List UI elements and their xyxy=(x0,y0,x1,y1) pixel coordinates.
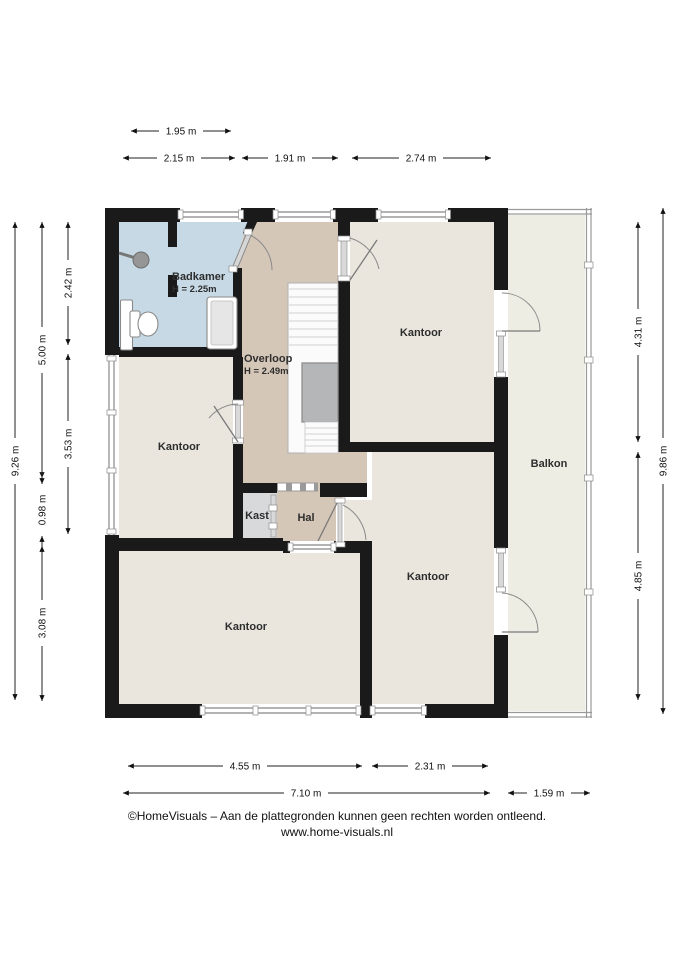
window-bottom-1 xyxy=(200,704,361,718)
svg-text:3.08 m: 3.08 m xyxy=(38,608,49,639)
dim-left-500: 5.00 m xyxy=(35,222,49,478)
dim-left-242: 2.42 m xyxy=(61,222,75,345)
svg-text:9.26 m: 9.26 m xyxy=(11,446,22,477)
dim-right-485: 4.85 m xyxy=(631,452,645,700)
dim-bottom-455: 4.55 m xyxy=(128,759,362,773)
overloop-label: Overloop xyxy=(244,353,293,365)
dim-right-431: 4.31 m xyxy=(631,222,645,442)
svg-text:7.10 m: 7.10 m xyxy=(291,789,322,800)
footer-disclaimer: ©HomeVisuals – Aan de plattegronden kunn… xyxy=(128,809,546,823)
stair-landing xyxy=(302,363,338,422)
window-top-2 xyxy=(273,208,336,222)
badkamer-label: Badkamer xyxy=(172,271,226,283)
svg-text:1.91 m: 1.91 m xyxy=(275,154,306,165)
kantoor-bottom-right-label: Kantoor xyxy=(407,571,450,583)
hal-label: Hal xyxy=(297,512,314,524)
svg-text:3.53 m: 3.53 m xyxy=(64,429,75,460)
svg-text:2.31 m: 2.31 m xyxy=(415,762,446,773)
kast-label: Kast xyxy=(245,510,269,522)
svg-text:2.15 m: 2.15 m xyxy=(164,154,195,165)
svg-text:4.55 m: 4.55 m xyxy=(230,762,261,773)
overloop-height-label: H = 2.49m xyxy=(244,366,289,377)
dim-left-926: 9.26 m xyxy=(8,222,22,700)
balkon-label: Balkon xyxy=(531,458,568,470)
dim-top-215: 2.15 m xyxy=(123,151,235,165)
window-top-3 xyxy=(376,208,451,222)
svg-text:0.98 m: 0.98 m xyxy=(38,495,49,526)
svg-text:5.00 m: 5.00 m xyxy=(38,335,49,366)
svg-text:2.74 m: 2.74 m xyxy=(406,154,437,165)
dim-bottom-231: 2.31 m xyxy=(372,759,488,773)
window-left xyxy=(105,355,119,535)
dim-left-308: 3.08 m xyxy=(35,546,49,701)
svg-text:1.95 m: 1.95 m xyxy=(166,127,197,138)
svg-text:4.85 m: 4.85 m xyxy=(634,561,645,592)
footer-url: www.home-visuals.nl xyxy=(280,825,393,839)
stairs xyxy=(288,283,338,453)
floorplan-svg: Badkamer H = 2.25m Overloop H = 2.49m Ka… xyxy=(0,0,679,960)
svg-text:4.31 m: 4.31 m xyxy=(634,317,645,348)
dim-top-191: 1.91 m xyxy=(242,151,338,165)
dim-left-098: 0.98 m xyxy=(38,462,49,558)
kantoor-bottom-left-label: Kantoor xyxy=(225,621,268,633)
toilet xyxy=(130,311,158,337)
dim-bottom-710: 7.10 m xyxy=(123,786,490,800)
kantoor-left-label: Kantoor xyxy=(158,441,201,453)
floorplan-page: Badkamer H = 2.25m Overloop H = 2.49m Ka… xyxy=(0,0,679,960)
kantoor-top-label: Kantoor xyxy=(400,327,443,339)
dim-top-195: 1.95 m xyxy=(131,124,231,138)
svg-text:1.59 m: 1.59 m xyxy=(534,789,565,800)
dim-bottom-159: 1.59 m xyxy=(508,786,590,800)
badkamer-height-label: H = 2.25m xyxy=(172,284,217,295)
hal-south-opening xyxy=(288,541,336,553)
dim-top-274: 2.74 m xyxy=(352,151,491,165)
shower-tray xyxy=(207,297,237,349)
dim-left-353: 3.53 m xyxy=(61,354,75,534)
window-bottom-2 xyxy=(370,704,427,718)
svg-text:9.86 m: 9.86 m xyxy=(659,446,670,477)
svg-text:2.42 m: 2.42 m xyxy=(64,268,75,299)
footer: ©HomeVisuals – Aan de plattegronden kunn… xyxy=(128,809,546,839)
dim-right-986: 9.86 m xyxy=(656,208,670,714)
window-top-1 xyxy=(178,208,244,222)
